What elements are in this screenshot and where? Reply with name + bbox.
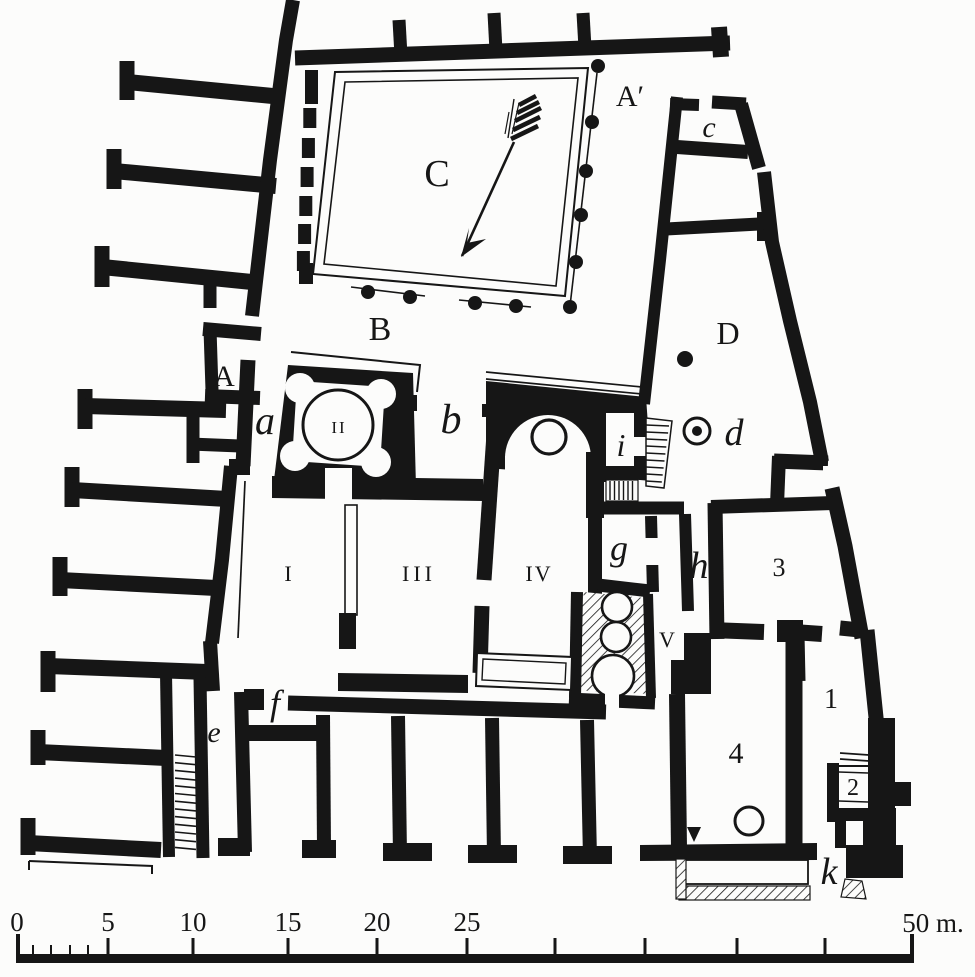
svg-text:25: 25 — [454, 907, 481, 937]
svg-text:h: h — [690, 545, 709, 587]
svg-text:i: i — [617, 427, 626, 463]
svg-text:D: D — [716, 315, 739, 351]
svg-text:a: a — [255, 398, 275, 443]
svg-text:15: 15 — [275, 907, 302, 937]
svg-text:A: A — [213, 360, 235, 393]
svg-text:III: III — [402, 561, 436, 586]
svg-text:k: k — [821, 851, 839, 893]
svg-text:5: 5 — [101, 907, 115, 937]
svg-text:0: 0 — [10, 907, 24, 937]
svg-text:IV: IV — [525, 561, 552, 586]
svg-text:c: c — [702, 111, 715, 144]
svg-text:3: 3 — [773, 553, 786, 582]
svg-text:1: 1 — [824, 684, 838, 715]
svg-text:V: V — [659, 627, 675, 652]
svg-text:50 m.: 50 m. — [902, 908, 964, 938]
svg-text:I: I — [284, 561, 291, 586]
svg-text:B: B — [369, 311, 392, 348]
svg-text:4: 4 — [729, 737, 744, 770]
svg-text:e: e — [207, 716, 220, 749]
svg-text:A′: A′ — [616, 80, 644, 113]
svg-text:C: C — [424, 153, 449, 195]
svg-text:II: II — [331, 418, 346, 437]
svg-text:2: 2 — [847, 775, 859, 801]
svg-text:d: d — [725, 412, 745, 454]
svg-text:20: 20 — [364, 907, 391, 937]
svg-text:10: 10 — [180, 907, 207, 937]
svg-text:b: b — [441, 397, 462, 443]
svg-text:g: g — [610, 528, 628, 568]
